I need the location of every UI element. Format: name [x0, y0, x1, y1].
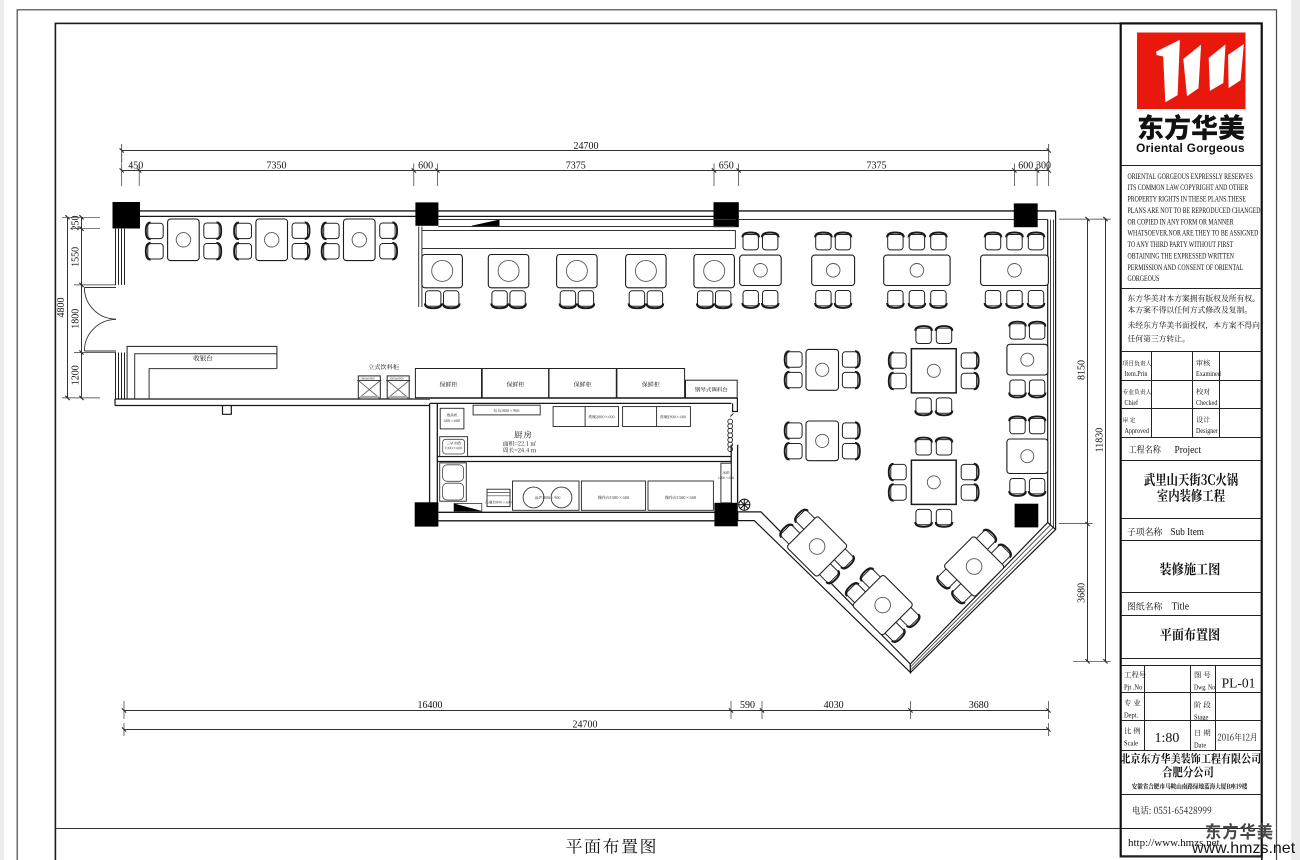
svg-text:Dept.: Dept.	[1124, 712, 1138, 719]
svg-text:Dwg. No: Dwg. No	[1194, 684, 1215, 692]
svg-text:450: 450	[128, 160, 143, 171]
svg-text:Sub Item: Sub Item	[1171, 527, 1205, 538]
svg-text:Scale: Scale	[1124, 740, 1138, 747]
svg-text:Item.Prin: Item.Prin	[1125, 371, 1149, 379]
svg-text:1000x0000: 1000x0000	[360, 377, 375, 381]
svg-text:ITS COMMON LAW COPYRIGHT AND O: ITS COMMON LAW COPYRIGHT AND OTHER	[1128, 183, 1249, 192]
svg-text:PLANS ARE NOT TO BE REPRODUCED: PLANS ARE NOT TO BE REPRODUCED CHANGED	[1128, 206, 1261, 215]
svg-text:24700: 24700	[574, 141, 599, 152]
svg-text:24700: 24700	[573, 719, 598, 730]
svg-text:3680: 3680	[969, 700, 989, 711]
svg-text:1800: 1800	[71, 309, 82, 329]
svg-text:Chief: Chief	[1125, 399, 1139, 407]
svg-text:1550: 1550	[71, 247, 82, 267]
svg-text:Pjt .No: Pjt .No	[1124, 684, 1143, 691]
svg-text:OR COPIED IN ANY FORM OR MANNE: OR COPIED IN ANY FORM OR MANNER	[1128, 217, 1234, 226]
svg-text:1:80: 1:80	[1155, 731, 1180, 746]
svg-text:Title: Title	[1172, 601, 1190, 612]
svg-text:Oriental Gorgeous: Oriental Gorgeous	[1136, 141, 1245, 155]
svg-text:ORIENTAL GORGEOUS EXPRESSLY RE: ORIENTAL GORGEOUS EXPRESSLY RESERVES	[1128, 172, 1253, 181]
svg-text:www.hmzs.net: www.hmzs.net	[1191, 840, 1296, 857]
svg-text:1200: 1200	[71, 365, 82, 385]
svg-text:300: 300	[1036, 160, 1051, 171]
svg-text:7375: 7375	[867, 160, 887, 171]
svg-text:Checked: Checked	[1196, 399, 1218, 407]
svg-text:Approved: Approved	[1125, 428, 1150, 436]
svg-text:4800: 4800	[56, 298, 67, 318]
svg-text:3680: 3680	[1077, 583, 1088, 603]
svg-text:7375: 7375	[566, 160, 586, 171]
svg-text:11830: 11830	[1095, 428, 1106, 453]
svg-text:WHATSOEVER.NOR ARE THEY TO BE: WHATSOEVER.NOR ARE THEY TO BE ASSIGNED	[1128, 229, 1259, 238]
svg-text:PROPERTY RIGHTS IN THESE PLANS: PROPERTY RIGHTS IN THESE PLANS.THESE	[1128, 195, 1246, 204]
svg-text:7350: 7350	[267, 160, 287, 171]
svg-text:16400: 16400	[418, 700, 443, 711]
svg-text:600: 600	[1018, 160, 1033, 171]
svg-text:Examined: Examined	[1196, 371, 1221, 379]
svg-text:8150: 8150	[1077, 360, 1088, 380]
svg-text:Stage: Stage	[1194, 714, 1208, 721]
svg-text:PL-01: PL-01	[1222, 676, 1256, 691]
svg-text:GORGEOUS: GORGEOUS	[1128, 274, 1160, 283]
svg-text:Designer: Designer	[1196, 428, 1219, 436]
svg-text:Project: Project	[1175, 444, 1202, 455]
svg-text:650: 650	[719, 160, 734, 171]
svg-text:590: 590	[740, 700, 755, 711]
svg-text:4030: 4030	[824, 700, 844, 711]
svg-text:PERMISSION AND CONSENT OF ORIE: PERMISSION AND CONSENT OF ORIENTAL	[1128, 263, 1244, 272]
svg-text:250: 250	[71, 216, 82, 231]
svg-text:1000x0000: 1000x0000	[389, 377, 404, 381]
svg-text:TO ANY THIRD PARTY WITHOUT FIR: TO ANY THIRD PARTY WITHOUT FIRST	[1128, 240, 1234, 249]
svg-text:OBTAINING THE EXPRESSED WRITTE: OBTAINING THE EXPRESSED WRITTEN	[1128, 252, 1234, 261]
svg-text:Date: Date	[1194, 742, 1206, 749]
svg-text:600: 600	[418, 160, 433, 171]
